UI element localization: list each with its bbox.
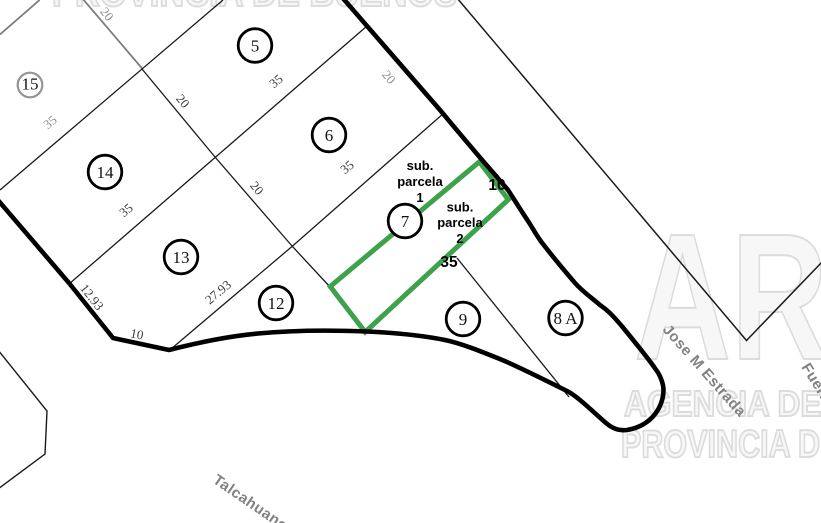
svg-text:parcela: parcela <box>397 174 443 189</box>
svg-text:sub.: sub. <box>407 158 434 173</box>
svg-text:8 A: 8 A <box>553 309 578 328</box>
svg-text:12: 12 <box>268 294 285 313</box>
svg-text:5: 5 <box>251 37 260 56</box>
svg-text:14: 14 <box>97 163 115 182</box>
svg-text:AR: AR <box>634 197 821 398</box>
svg-text:2: 2 <box>456 231 463 246</box>
svg-text:parcela: parcela <box>437 215 483 230</box>
svg-text:7: 7 <box>401 212 410 231</box>
svg-text:6: 6 <box>325 126 334 145</box>
svg-text:9: 9 <box>459 310 468 329</box>
svg-text:1: 1 <box>416 190 423 205</box>
svg-text:13: 13 <box>173 248 190 267</box>
svg-text:35: 35 <box>440 254 458 271</box>
svg-text:15: 15 <box>22 75 39 94</box>
svg-text:10: 10 <box>488 177 505 194</box>
svg-text:sub.: sub. <box>447 200 474 215</box>
svg-text:PROVINCIA DE B: PROVINCIA DE B <box>621 423 821 466</box>
